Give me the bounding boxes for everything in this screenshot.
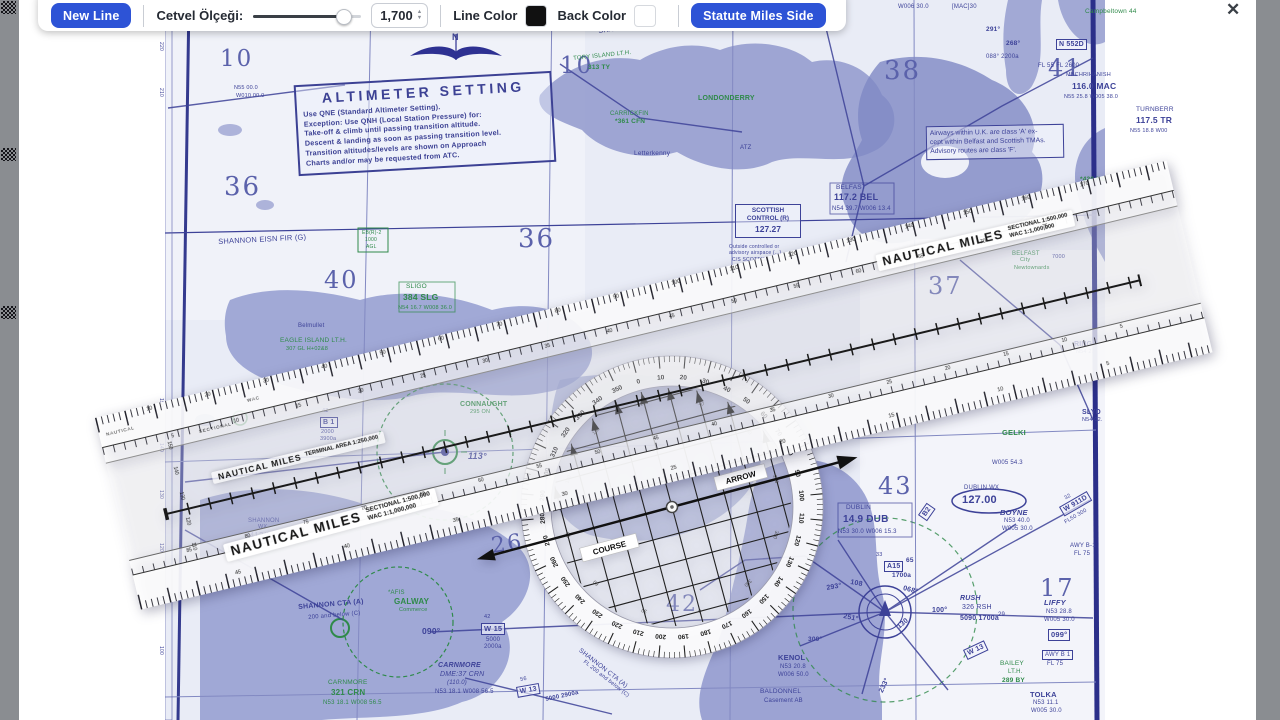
ruler-scale-value: 1,700 [380, 8, 413, 23]
back-color-label: Back Color [557, 8, 626, 23]
chart-label: TURNBERR [1136, 107, 1174, 114]
edge-artifact-icon [1, 148, 16, 161]
toolbar: New Line Cetvel Ölçeği: 1,700 ▲ ▼ Line C… [38, 0, 846, 31]
statute-miles-side-button[interactable]: Statute Miles Side [691, 3, 826, 28]
scottish-control-box: SCOTTISH CONTROL (R) 127.27 [735, 204, 801, 238]
slider-fill [253, 15, 342, 19]
altimeter-setting-box: ALTIMETER SETTING Use QNE (Standard Alti… [294, 71, 557, 177]
uk-airways-note-box: Airways within U.K. are class 'A' ex- ce… [926, 124, 1065, 160]
toolbar-divider [440, 5, 441, 27]
back-color-swatch[interactable] [634, 5, 656, 27]
scottish-line: CONTROL (R) [737, 215, 799, 223]
scottish-line: SCOTTISH [737, 207, 799, 215]
plotter-scale-number: 140 [172, 466, 179, 475]
close-icon[interactable]: ✕ [1226, 0, 1240, 20]
new-line-button[interactable]: New Line [51, 3, 131, 28]
line-color-swatch[interactable] [525, 5, 547, 27]
slider-handle[interactable] [336, 9, 352, 25]
chart-label: 100 [158, 646, 163, 655]
chart-label: 220 [158, 42, 163, 51]
right-edge-strip [1256, 0, 1280, 720]
edge-artifact-icon [1, 306, 16, 319]
svg-text:100: 100 [797, 490, 805, 502]
ruler-scale-slider[interactable] [253, 9, 361, 23]
ruler-scale-label: Cetvel Ölçeği: [156, 8, 243, 23]
toolbar-divider [678, 5, 679, 27]
plotter-scale-number: 150 [166, 441, 173, 450]
chart-label: N55 18.8 W00 [1130, 129, 1168, 135]
stepper-icons[interactable]: ▲ ▼ [417, 10, 422, 21]
plotter-scale-number: 120 [184, 517, 191, 526]
stepper-down-icon[interactable]: ▼ [417, 16, 422, 22]
scottish-freq: 127.27 [737, 224, 799, 235]
toolbar-divider [143, 5, 144, 27]
chart-label: 210 [158, 88, 163, 97]
airways-line: Advisory routes are class 'F'. [930, 145, 1060, 156]
svg-text:190: 190 [677, 632, 689, 640]
svg-text:200: 200 [655, 632, 667, 640]
chart-label: 117.5 TR [1136, 116, 1172, 125]
edge-artifact-icon [1, 1, 16, 14]
ruler-scale-input[interactable]: 1,700 ▲ ▼ [371, 3, 428, 28]
plotter-scale-number: 130 [178, 492, 185, 501]
line-color-label: Line Color [453, 8, 517, 23]
plotter-scale-number: 5 [1120, 325, 1124, 331]
plotter-scale-number: 110 [190, 542, 197, 551]
left-edge-strip [0, 0, 19, 720]
svg-text:110: 110 [797, 513, 805, 524]
plotter-scale-number: 5 [171, 434, 175, 440]
svg-text:280: 280 [539, 512, 547, 524]
app-window: 101036363841403743264217NSHANNON EISN FI… [0, 0, 1280, 720]
